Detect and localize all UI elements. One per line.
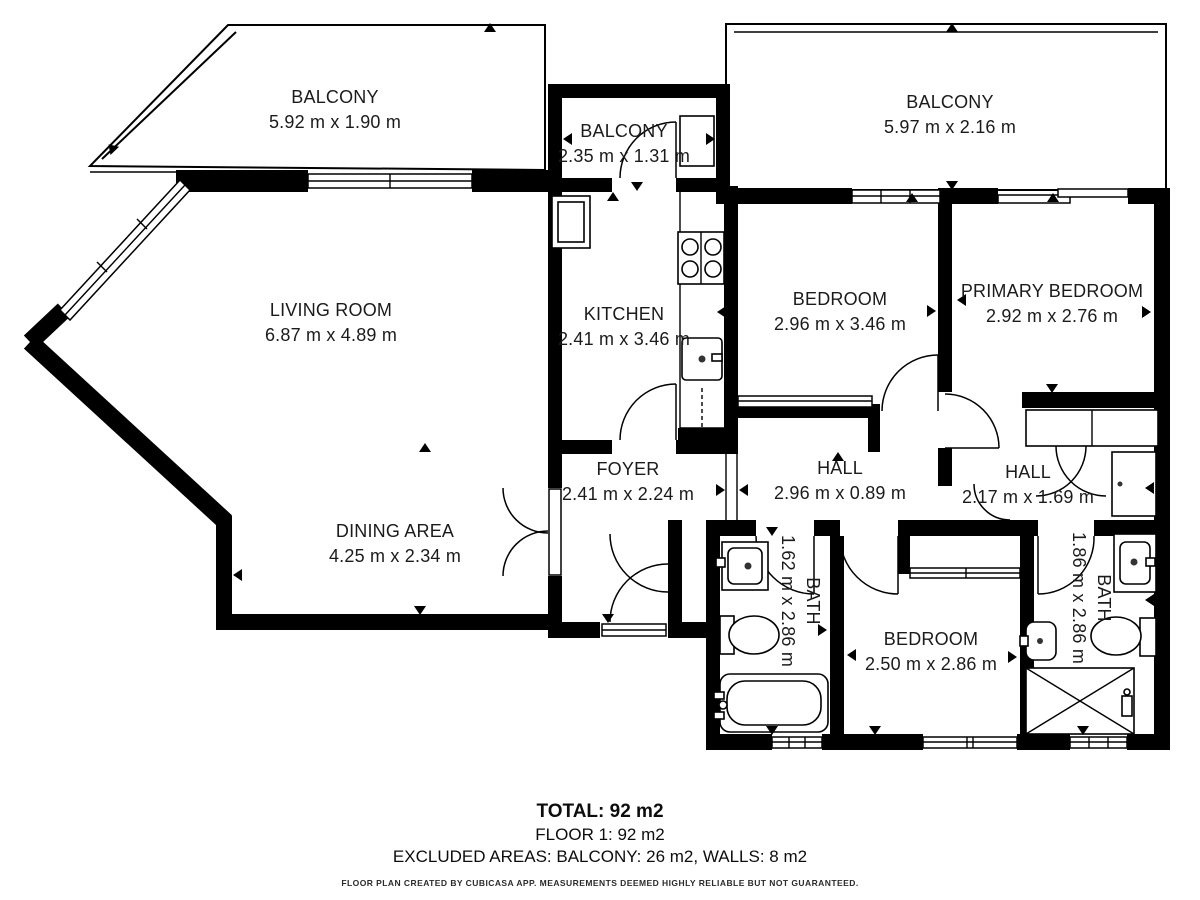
room-name: DINING AREA: [329, 519, 461, 544]
bath-left-toilet-icon: [720, 616, 779, 654]
cased-opening: [726, 454, 737, 520]
room-dims: 2.92 m x 2.76 m: [961, 304, 1143, 329]
room-dims: 2.17 m x 1.69 m: [962, 485, 1094, 510]
floor-plan-page: { "plan": { "rooms": { "balcony_tl": {"n…: [0, 0, 1200, 900]
bath-right-sink-icon: [1114, 534, 1156, 592]
room-dims: 2.35 m x 1.31 m: [558, 144, 690, 169]
room-dims: 5.92 m x 1.90 m: [269, 110, 401, 135]
hall-cabinet: [1112, 452, 1156, 516]
room-dims: 4.25 m x 2.34 m: [329, 544, 461, 569]
room-name: FOYER: [562, 457, 694, 482]
room-label-dining-area: DINING AREA 4.25 m x 2.34 m: [329, 519, 461, 569]
room-dims: 2.96 m x 3.46 m: [774, 312, 906, 337]
room-label-bedroom-bottom: BEDROOM 2.50 m x 2.86 m: [865, 627, 997, 677]
room-dims: 2.50 m x 2.86 m: [865, 652, 997, 677]
room-dims: 6.87 m x 4.89 m: [265, 323, 397, 348]
room-dims: 1.62 m x 2.86 m: [775, 535, 800, 667]
diagonal-walls: [30, 310, 226, 522]
room-label-living-room: LIVING ROOM 6.87 m x 4.89 m: [265, 298, 397, 348]
floor-plan-canvas: [0, 0, 1200, 780]
shower-icon: [1026, 668, 1134, 734]
room-label-balcony-middle: BALCONY 2.35 m x 1.31 m: [558, 119, 690, 169]
room-label-kitchen: KITCHEN 2.41 m x 3.46 m: [558, 302, 690, 352]
stove-icon: [678, 232, 724, 284]
room-label-balcony-top-left: BALCONY 5.92 m x 1.90 m: [269, 85, 401, 135]
primary-closet: [1026, 410, 1158, 446]
room-dims: 5.97 m x 2.16 m: [884, 115, 1016, 140]
room-name: BALCONY: [884, 90, 1016, 115]
excluded-areas: EXCLUDED AREAS: BALCONY: 26 m2, WALLS: 8…: [0, 847, 1200, 867]
room-name: PRIMARY BEDROOM: [961, 279, 1143, 304]
room-label-foyer: FOYER 2.41 m x 2.24 m: [562, 457, 694, 507]
room-dims: 2.41 m x 2.24 m: [562, 482, 694, 507]
room-name: BATH: [1091, 532, 1116, 664]
room-name: HALL: [962, 460, 1094, 485]
room-name: LIVING ROOM: [265, 298, 397, 323]
floor-area: FLOOR 1: 92 m2: [0, 825, 1200, 845]
room-label-bedroom-top: BEDROOM 2.96 m x 3.46 m: [774, 287, 906, 337]
room-label-hall-right: HALL 2.17 m x 1.69 m: [962, 460, 1094, 510]
fridge-icon: [552, 196, 590, 248]
bathtub-icon: [714, 674, 828, 732]
room-name: BATH: [800, 535, 825, 667]
room-label-balcony-top-right: BALCONY 5.97 m x 2.16 m: [884, 90, 1016, 140]
room-dims: 2.96 m x 0.89 m: [774, 481, 906, 506]
room-label-bath-right: BATH 1.86 m x 2.86 m: [1066, 532, 1116, 664]
room-name: BALCONY: [269, 85, 401, 110]
bath-left-sink-icon: [716, 542, 768, 590]
room-name: BEDROOM: [865, 627, 997, 652]
room-label-hall-center: HALL 2.96 m x 0.89 m: [774, 456, 906, 506]
room-dims: 2.41 m x 3.46 m: [558, 327, 690, 352]
room-dims: 1.86 m x 2.86 m: [1066, 532, 1091, 664]
plan-summary: TOTAL: 92 m2 FLOOR 1: 92 m2 EXCLUDED ARE…: [0, 801, 1200, 888]
room-name: KITCHEN: [558, 302, 690, 327]
room-name: HALL: [774, 456, 906, 481]
room-name: BALCONY: [558, 119, 690, 144]
room-label-bath-left: BATH 1.62 m x 2.86 m: [775, 535, 825, 667]
room-name: BEDROOM: [774, 287, 906, 312]
room-label-primary-bedroom: PRIMARY BEDROOM 2.92 m x 2.76 m: [961, 279, 1143, 329]
total-area: TOTAL: 92 m2: [0, 801, 1200, 823]
disclaimer-text: FLOOR PLAN CREATED BY CUBICASA APP. MEAS…: [0, 878, 1200, 888]
